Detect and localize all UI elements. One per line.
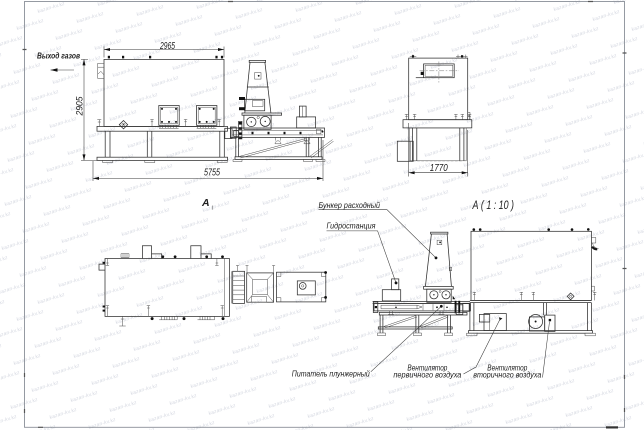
svg-text:вторичного воздуха: вторичного воздуха	[473, 369, 541, 379]
svg-text:2965: 2965	[159, 41, 175, 52]
svg-text:Бункер расходный: Бункер расходный	[319, 200, 381, 210]
svg-text:Гидростанция: Гидростанция	[327, 221, 376, 231]
svg-text:Выход газов: Выход газов	[37, 50, 80, 60]
svg-text:А: А	[201, 197, 210, 209]
svg-text:первичного воздуха: первичного воздуха	[393, 369, 461, 379]
svg-text:Питатель плунжерный: Питатель плунжерный	[292, 369, 370, 379]
svg-text:5755: 5755	[204, 167, 220, 178]
svg-text:1770: 1770	[430, 163, 448, 174]
svg-text:2905: 2905	[73, 96, 84, 117]
svg-text:А ( 1 : 10 ): А ( 1 : 10 )	[472, 198, 514, 212]
